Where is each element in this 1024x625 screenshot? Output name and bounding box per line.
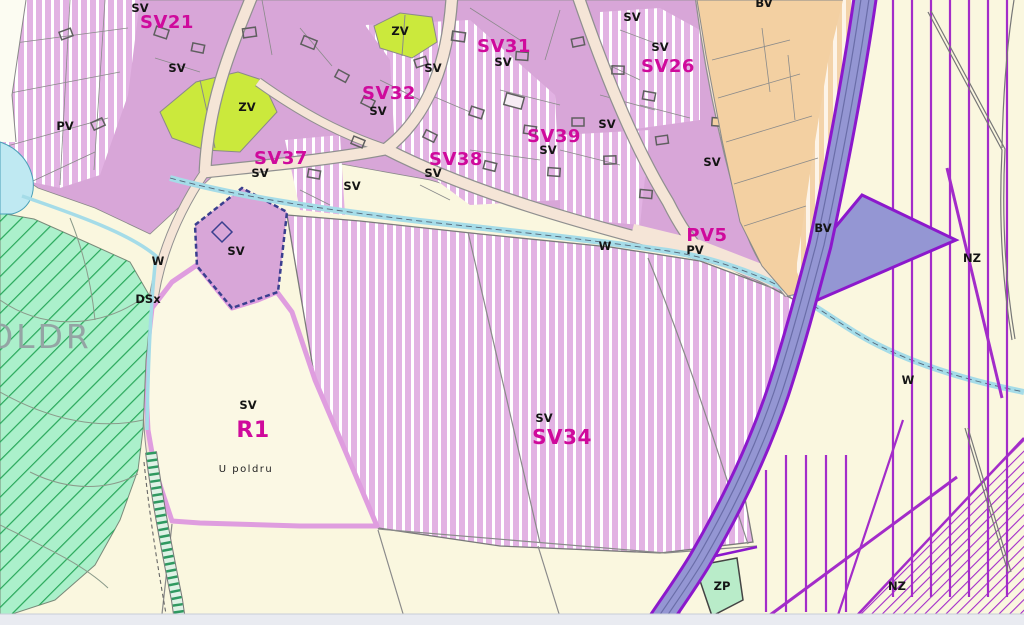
code-label-sv: SV — [535, 411, 552, 425]
area-label-u-poldru: U poldru — [219, 464, 274, 475]
code-label-sv: SV — [168, 61, 185, 75]
map-viewport[interactable]: SV21SV31SV32SV26SV39SV38SV37PV5SV34R1SVS… — [0, 0, 1024, 625]
code-label-sv: SV — [539, 143, 556, 157]
code-label-sv: SV — [424, 61, 441, 75]
code-label-sv: SV — [424, 166, 441, 180]
zoning-map-svg[interactable]: SV21SV31SV32SV26SV39SV38SV37PV5SV34R1SVS… — [0, 0, 1024, 625]
code-label-zv: ZV — [238, 100, 255, 114]
code-label-sv: SV — [343, 179, 360, 193]
code-label-pv: PV — [686, 243, 703, 257]
code-label-sv: SV — [251, 166, 268, 180]
window-bottom-edge — [0, 614, 1024, 625]
code-label-zp: ZP — [714, 579, 731, 593]
code-label-sv: SV — [623, 10, 640, 24]
zone-label-r1: R1 — [236, 418, 269, 443]
code-label-nz: NZ — [888, 579, 906, 593]
code-label-w: W — [599, 239, 612, 253]
zone-label-sv31: SV31 — [477, 36, 531, 57]
zone-label-sv34: SV34 — [532, 425, 592, 449]
code-label-zv: ZV — [391, 24, 408, 38]
code-label-sv: SV — [227, 244, 244, 258]
code-label-pv: PV — [56, 119, 73, 133]
code-label-bv: BV — [755, 0, 772, 10]
zone-label-sv32: SV32 — [362, 83, 416, 104]
zone-label-sv21: SV21 — [140, 12, 194, 33]
code-label-sv: SV — [131, 1, 148, 15]
code-label-w: W — [902, 373, 915, 387]
code-label-w: W — [152, 254, 165, 268]
code-label-sv: SV — [239, 398, 256, 412]
code-label-sv: SV — [703, 155, 720, 169]
zone-label-sv26: SV26 — [641, 56, 695, 77]
code-label-sv: SV — [369, 104, 386, 118]
code-label-sv: SV — [494, 55, 511, 69]
code-label-sv: SV — [651, 40, 668, 54]
code-label-dsx: DSx — [135, 292, 161, 306]
area-label-poldr: POLDR — [0, 317, 92, 356]
code-label-sv: SV — [598, 117, 615, 131]
code-label-bv: BV — [814, 221, 831, 235]
code-label-nz: NZ — [963, 251, 981, 265]
